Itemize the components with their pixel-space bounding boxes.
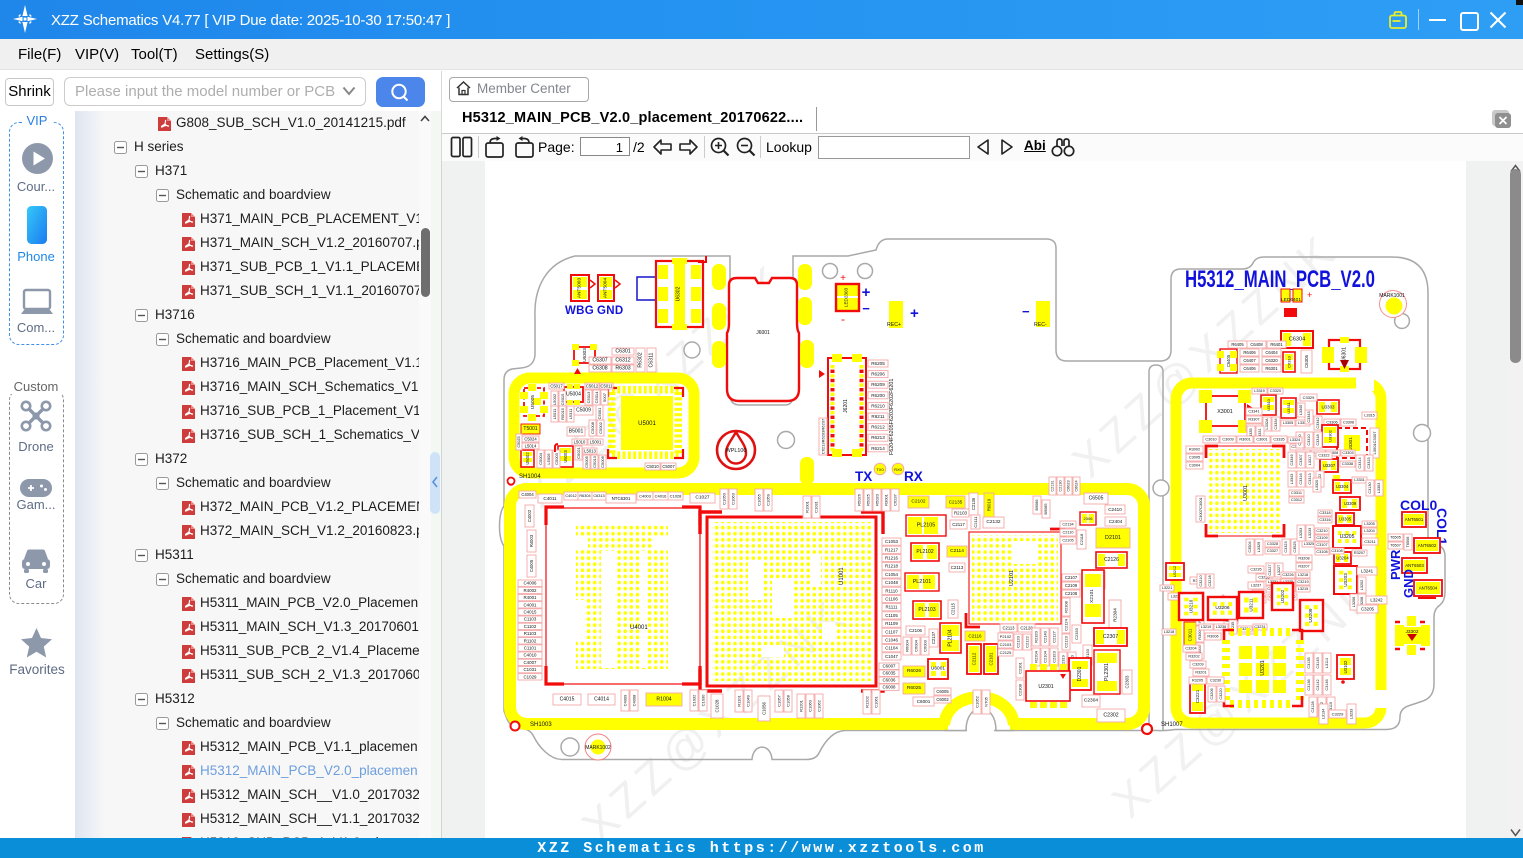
svg-text:U3201: U3201	[1260, 660, 1266, 675]
svg-text:C5025: C5025	[517, 436, 521, 447]
svg-text:U3203: U3203	[1343, 573, 1348, 587]
svg-text:C2136: C2136	[971, 497, 976, 510]
svg-text:C4007: C4007	[524, 660, 537, 665]
svg-text:C2301: C2301	[1018, 661, 1023, 674]
svg-text:C1058: C1058	[786, 694, 791, 707]
svg-text:L5005: L5005	[546, 453, 551, 465]
svg-text:C2128: C2128	[1020, 626, 1033, 631]
svg-text:L3233: L3233	[1350, 709, 1354, 720]
svg-text:C3312: C3312	[1291, 498, 1302, 502]
svg-text:-: -	[841, 312, 845, 326]
svg-text:T6507: T6507	[1390, 544, 1401, 548]
svg-text:C1028: C1028	[715, 699, 720, 712]
svg-text:LED6401: LED6401	[1281, 297, 1301, 303]
svg-text:R1217: R1217	[885, 547, 898, 552]
svg-text:C3005: C3005	[1189, 456, 1200, 460]
svg-text:C2303: C2303	[1125, 675, 1130, 688]
svg-text:R6214: R6214	[871, 446, 885, 451]
svg-text:C2122: C2122	[1025, 635, 1030, 648]
svg-text:C1101: C1101	[524, 646, 537, 651]
svg-text:C1050: C1050	[722, 492, 727, 505]
svg-text:C2140: C2140	[1043, 630, 1048, 643]
svg-text:R3001: R3001	[1239, 438, 1250, 442]
svg-text:C3108: C3108	[1331, 549, 1342, 553]
svg-text:−: −	[862, 301, 870, 316]
svg-text:ANT6501: ANT6501	[1405, 517, 1424, 522]
svg-text:C3313: C3313	[1308, 473, 1312, 484]
svg-text:B9085: B9085	[1044, 504, 1048, 515]
svg-text:C6305: C6305	[1304, 354, 1309, 367]
svg-text:R1001: R1001	[805, 500, 810, 513]
svg-text:C3322: C3322	[1318, 454, 1329, 458]
svg-text:R1216: R1216	[885, 556, 898, 561]
svg-text:C6406: C6406	[1243, 366, 1256, 371]
svg-text:C5012: C5012	[586, 384, 599, 389]
svg-text:C6312: C6312	[615, 358, 630, 364]
svg-text:C6001: C6001	[917, 699, 931, 704]
svg-text:C3318: C3318	[1316, 434, 1320, 445]
svg-text:C6320: C6320	[1265, 358, 1278, 363]
svg-text:L3114: L3114	[1325, 658, 1329, 668]
svg-text:C3341: C3341	[1248, 410, 1259, 414]
svg-text:U3206: U3206	[1215, 605, 1229, 611]
svg-text:R3307: R3307	[1248, 418, 1259, 422]
svg-text:L3202: L3202	[1360, 580, 1364, 591]
svg-text:C3338: C3338	[1342, 462, 1353, 466]
svg-text:C5005: C5005	[584, 455, 589, 468]
svg-text:C5013: C5013	[592, 455, 597, 468]
svg-text:U3310: U3310	[1266, 398, 1271, 411]
svg-text:C4003: C4003	[639, 494, 652, 499]
svg-text:U1001: U1001	[839, 567, 845, 585]
svg-text:C4005: C4005	[529, 559, 534, 572]
svg-text:C1032: C1032	[692, 694, 697, 707]
svg-text:U3210: U3210	[1189, 599, 1194, 613]
svg-text:L5010: L5010	[574, 440, 586, 445]
svg-text:C6007: C6007	[883, 664, 896, 669]
svg-text:L5013: L5013	[584, 449, 596, 454]
svg-text:C3001: C3001	[1256, 438, 1267, 442]
svg-text:C5003: C5003	[554, 452, 559, 465]
svg-text:C6003: C6003	[923, 639, 928, 652]
svg-text:C3335: C3335	[1273, 438, 1284, 442]
svg-text:C2124: C2124	[1064, 618, 1069, 631]
svg-text:C2323: C2323	[1052, 650, 1057, 663]
svg-text:R2304: R2304	[1113, 608, 1118, 622]
svg-text:C3306: C3306	[1326, 421, 1337, 425]
svg-text:R3201: R3201	[1195, 671, 1206, 675]
svg-text:C2118: C2118	[1079, 533, 1084, 545]
svg-text:X3001: X3001	[1217, 409, 1233, 415]
svg-text:U2101: U2101	[1009, 570, 1015, 586]
svg-text:L3221: L3221	[1162, 586, 1173, 590]
svg-text:+: +	[862, 284, 871, 301]
svg-text:C2333: C2333	[1074, 627, 1079, 640]
svg-text:C2115: C2115	[951, 602, 956, 615]
svg-text:U3205: U3205	[1340, 534, 1355, 540]
svg-text:C2307: C2307	[1103, 634, 1118, 640]
svg-text:+: +	[840, 273, 846, 284]
svg-text:PL2102: PL2102	[916, 549, 933, 555]
svg-text:C3128: C3128	[1311, 701, 1315, 712]
svg-text:C4008: C4008	[632, 694, 637, 707]
svg-text:C6408: C6408	[1250, 342, 1263, 347]
svg-text:U6001: U6001	[931, 666, 945, 672]
svg-text:L3204: L3204	[1364, 529, 1375, 533]
svg-text:C2107: C2107	[1065, 575, 1078, 580]
svg-text:C1103: C1103	[524, 617, 537, 622]
svg-text:R1004: R1004	[656, 697, 671, 703]
svg-text:C6213R6203R6207: C6213R6203R6207	[821, 418, 826, 454]
svg-text:C2105: C2105	[1062, 539, 1073, 543]
svg-text:L3315: L3315	[1364, 414, 1375, 418]
svg-text:C1063: C1063	[731, 492, 736, 505]
svg-text:U3311: U3311	[1286, 401, 1291, 413]
svg-text:L5311: L5311	[568, 408, 573, 420]
svg-text:C5001: C5001	[597, 407, 602, 420]
svg-text:+: +	[910, 305, 919, 322]
svg-text:R3207: R3207	[1354, 551, 1365, 555]
svg-text:C4006: C4006	[524, 581, 537, 586]
svg-text:L3206: L3206	[1352, 597, 1356, 608]
svg-text:R2204: R2204	[1034, 650, 1039, 663]
svg-text:C2120: C2120	[1016, 635, 1021, 648]
svg-text:R6209: R6209	[871, 382, 885, 387]
svg-text:C3220: C3220	[1219, 688, 1223, 699]
svg-text:NTC6301: NTC6301	[612, 496, 631, 501]
svg-text:C1106: C1106	[885, 597, 898, 602]
svg-text:C1057: C1057	[777, 694, 782, 707]
svg-text:C1104: C1104	[885, 646, 898, 651]
svg-text:U3211: U3211	[1249, 598, 1254, 612]
svg-text:RX0: RX0	[894, 467, 903, 472]
svg-text:C3314: C3314	[1358, 457, 1362, 468]
svg-text:L3218: L3218	[1298, 573, 1309, 577]
svg-text:C5004: C5004	[538, 452, 543, 465]
svg-text:R1202: R1202	[865, 695, 870, 708]
svg-text:U3102: U3102	[1343, 660, 1348, 673]
svg-text:C3221: C3221	[1195, 689, 1200, 703]
svg-text:C2130: C2130	[1059, 480, 1063, 491]
svg-text:C1049: C1049	[746, 694, 751, 707]
svg-text:C3211: C3211	[1364, 539, 1376, 544]
svg-text:C1107: C1107	[885, 629, 898, 634]
svg-text:R6019: R6019	[987, 498, 992, 511]
svg-text:C1056: C1056	[762, 701, 767, 714]
svg-text:L5002: L5002	[552, 393, 557, 405]
svg-text:L3219: L3219	[1201, 625, 1212, 629]
svg-text:C1028: C1028	[670, 494, 683, 499]
svg-text:U3307: U3307	[1323, 463, 1336, 468]
svg-text:C6308: C6308	[592, 366, 607, 372]
svg-text:NT05: NT05	[984, 696, 989, 707]
svg-text:C2109: C2109	[1065, 583, 1078, 588]
svg-text:R4002: R4002	[524, 588, 537, 593]
svg-text:U3202: U3202	[1280, 589, 1285, 603]
svg-text:U3001: U3001	[1243, 485, 1249, 501]
svg-text:C3210: C3210	[1199, 575, 1203, 586]
svg-text:R4001: R4001	[524, 595, 537, 600]
svg-text:R2308: R2308	[1064, 600, 1069, 613]
svg-text:R6025: R6025	[907, 685, 921, 691]
svg-text:5007: 5007	[602, 392, 607, 402]
svg-text:U3303: U3303	[1322, 405, 1335, 410]
svg-text:L3242: L3242	[1370, 598, 1383, 603]
svg-text:R3006: R3006	[1207, 635, 1218, 639]
svg-text:C1059: C1059	[766, 493, 771, 506]
svg-text:L3319: L3319	[1254, 389, 1265, 393]
svg-text:C3205: C3205	[1361, 607, 1374, 612]
svg-text:C2110: C2110	[1063, 531, 1074, 535]
svg-text:L3501C3307: L3501C3307	[1372, 431, 1377, 455]
svg-text:C2131: C2131	[1051, 480, 1055, 491]
svg-text:R1111: R1111	[886, 605, 899, 610]
svg-text:R5026: R5026	[857, 493, 862, 506]
svg-text:L5014: L5014	[525, 444, 537, 449]
svg-text:C1054: C1054	[885, 572, 898, 577]
svg-text:C1048: C1048	[885, 580, 898, 585]
svg-text:C5015: C5015	[560, 393, 565, 406]
svg-text:R6401: R6401	[1270, 342, 1283, 347]
svg-text:C1046: C1046	[885, 638, 898, 643]
svg-text:C2112: C2112	[972, 652, 977, 665]
svg-text:C4015: C4015	[560, 697, 575, 703]
svg-text:C2125: C2125	[1000, 650, 1013, 655]
svg-text:C3145: C3145	[1316, 657, 1320, 668]
svg-text:C3007C3001: C3007C3001	[1198, 496, 1203, 520]
svg-text:R3002: R3002	[1189, 448, 1200, 452]
svg-text:L3325: L3325	[1304, 542, 1315, 546]
svg-text:C4015: C4015	[524, 610, 537, 615]
svg-text:C4014: C4014	[594, 697, 609, 703]
svg-text:C3109: C3109	[1316, 536, 1327, 540]
svg-text:C3327: C3327	[1267, 549, 1278, 553]
svg-text:C3218: C3218	[1208, 575, 1212, 586]
svg-text:C3146: C3146	[1325, 679, 1329, 690]
svg-text:C3316: C3316	[1299, 473, 1303, 484]
svg-text:L3134: L3134	[1322, 709, 1326, 720]
svg-text:R5025: R5025	[866, 493, 871, 506]
svg-text:C4011: C4011	[543, 496, 557, 501]
svg-text:C5013: C5013	[586, 391, 591, 404]
svg-text:L5011: L5011	[552, 408, 557, 420]
svg-text:R3202: R3202	[1188, 655, 1199, 659]
svg-text:C3315: C3315	[1367, 457, 1371, 468]
svg-text:C6304: C6304	[1289, 337, 1305, 343]
svg-text:C6004: C6004	[914, 639, 919, 652]
svg-text:C6405: C6405	[1226, 354, 1231, 367]
svg-text:C4002: C4002	[527, 509, 532, 522]
svg-text:C2117: C2117	[952, 522, 965, 527]
svg-text:RX: RX	[904, 469, 923, 484]
svg-text:C1029: C1029	[524, 674, 537, 679]
svg-text:C2135: C2135	[949, 500, 963, 505]
svg-text:C3328: C3328	[1267, 542, 1278, 546]
svg-text:U5005: U5005	[530, 395, 536, 409]
svg-text:C2102: C2102	[911, 499, 925, 505]
svg-text:R6212: R6212	[871, 425, 885, 430]
svg-text:U6301: U6301	[1342, 347, 1348, 362]
svg-text:R6206: R6206	[871, 372, 885, 377]
svg-text:C1055: C1055	[757, 493, 762, 506]
svg-text:REC-: REC-	[1034, 322, 1047, 328]
svg-text:C6301: C6301	[615, 349, 630, 355]
svg-text:C3343: C3343	[1307, 411, 1311, 422]
svg-text:C5009: C5009	[576, 408, 591, 414]
svg-text:X2101: X2101	[1089, 589, 1095, 603]
svg-text:L3329: L3329	[1257, 542, 1261, 553]
svg-text:ANT6502: ANT6502	[1418, 543, 1437, 548]
svg-text:C5014: C5014	[594, 391, 599, 404]
svg-text:R6210: R6210	[871, 403, 885, 408]
svg-text:L3324: L3324	[1290, 438, 1301, 442]
svg-text:D2301: D2301	[1077, 666, 1083, 681]
svg-text:L3218: L3218	[1164, 630, 1175, 634]
svg-text:U3305: U3305	[1339, 517, 1352, 522]
svg-text:WPL100: WPL100	[726, 448, 747, 454]
svg-text:C1052: C1052	[975, 695, 980, 708]
svg-text:C4009: C4009	[623, 694, 628, 707]
svg-text:C3310: C3310	[1307, 434, 1311, 445]
svg-text:C6024: C6024	[1075, 480, 1079, 491]
svg-text:R1109: R1109	[885, 621, 898, 626]
svg-text:C4004: C4004	[521, 492, 534, 497]
svg-text:C5017: C5017	[550, 384, 563, 389]
svg-text:C1105: C1105	[885, 613, 898, 618]
svg-text:C3009: C3009	[1222, 438, 1233, 442]
svg-text:R1110: R1110	[885, 588, 898, 593]
svg-text:C2108: C2108	[1065, 591, 1078, 596]
svg-text:SH1004: SH1004	[519, 474, 541, 480]
svg-text:U3209: U3209	[1308, 608, 1314, 622]
svg-text:R1102: R1102	[524, 638, 537, 643]
svg-text:L3331: L3331	[1354, 478, 1365, 482]
svg-text:WBG: WBG	[565, 305, 594, 317]
svg-text:U3309: U3309	[1344, 501, 1357, 506]
svg-text:R5020: R5020	[875, 493, 880, 506]
svg-text:C1047: C1047	[885, 654, 898, 659]
svg-text:PL2301: PL2301	[1104, 663, 1110, 681]
svg-text:C3329: C3329	[1303, 395, 1316, 400]
svg-text:R2320: R2320	[1034, 630, 1039, 643]
svg-text:C3318: C3318	[1319, 511, 1330, 515]
svg-text:L3340: L3340	[1299, 405, 1303, 416]
svg-text:J6201: J6201	[843, 399, 849, 413]
svg-text:R1103: R1103	[524, 631, 537, 636]
svg-text:COL0: COL0	[1400, 497, 1438, 513]
svg-text:R3207: R3207	[1298, 565, 1309, 569]
svg-text:L3205: L3205	[1364, 522, 1375, 526]
svg-text:C3342: C3342	[1316, 417, 1320, 428]
svg-text:R6200: R6200	[871, 393, 885, 398]
svg-text:R6205: R6205	[871, 361, 885, 366]
svg-text:C3323: C3323	[1284, 541, 1288, 552]
svg-text:L3241: L3241	[1361, 569, 1374, 574]
svg-text:L3343: L3343	[1290, 474, 1294, 485]
svg-text:C3229: C3229	[1332, 712, 1345, 717]
svg-text:C3107: C3107	[1316, 543, 1327, 547]
svg-text:C3142: C3142	[1316, 679, 1320, 690]
svg-text:C2134: C2134	[1062, 523, 1073, 527]
svg-text:R6301: R6301	[1265, 366, 1278, 371]
svg-text:R5015: R5015	[560, 407, 565, 420]
svg-text:C2113: C2113	[951, 565, 964, 570]
svg-text:R6302: R6302	[638, 352, 644, 367]
svg-text:C2114: C2114	[950, 548, 964, 554]
svg-text:ANT5003: ANT5003	[577, 278, 583, 299]
svg-text:C1060: C1060	[808, 699, 813, 712]
svg-text:C3010: C3010	[1205, 438, 1216, 442]
svg-text:R6405: R6405	[1231, 342, 1244, 347]
svg-text:R6303: R6303	[615, 366, 630, 372]
svg-text:2306: 2306	[1084, 516, 1094, 521]
svg-text:C2308: C2308	[1018, 683, 1023, 696]
svg-text:C1030: C1030	[701, 694, 706, 707]
svg-text:C5024: C5024	[524, 437, 537, 442]
svg-text:T5001: T5001	[523, 426, 537, 432]
svg-text:C6237: C6237	[893, 493, 898, 506]
svg-text:ANT5004: ANT5004	[603, 278, 609, 299]
svg-text:−: −	[1022, 304, 1030, 319]
svg-text:TX0: TX0	[876, 467, 884, 472]
svg-text:C3011: C3011	[1188, 628, 1193, 641]
svg-text:C6035: C6035	[883, 671, 896, 676]
svg-text:SH1003: SH1003	[530, 722, 552, 728]
svg-text:U6302: U6302	[676, 286, 682, 301]
svg-text:C6005: C6005	[936, 689, 949, 694]
svg-text:C2137: C2137	[931, 631, 936, 644]
svg-text:C3136: C3136	[1307, 679, 1311, 690]
svg-text:ANT6504: ANT6504	[1419, 586, 1438, 591]
svg-text:C1053: C1053	[885, 539, 898, 544]
svg-text:R3205: R3205	[1192, 679, 1203, 683]
svg-text:C3320: C3320	[1270, 389, 1281, 393]
svg-text:MARK1002: MARK1002	[585, 745, 611, 751]
svg-text:U2301: U2301	[1038, 684, 1053, 690]
svg-text:R6304: R6304	[579, 494, 590, 498]
svg-text:PL2105: PL2105	[917, 523, 936, 529]
svg-text:B5001: B5001	[569, 429, 584, 435]
svg-text:C2410: C2410	[1108, 507, 1122, 512]
svg-text:C6002: C6002	[936, 697, 949, 702]
svg-text:U3212: U3212	[1173, 566, 1177, 577]
svg-text:C4010: C4010	[524, 653, 537, 658]
svg-text:U5004: U5004	[566, 392, 581, 398]
svg-text:T6505: T6505	[1390, 536, 1401, 540]
svg-text:C3504: C3504	[1248, 541, 1252, 552]
svg-text:R4003: R4003	[529, 534, 534, 547]
svg-text:C1031: C1031	[524, 667, 537, 672]
svg-text:L3215: L3215	[1298, 587, 1309, 591]
svg-text:P2102: P2102	[1000, 634, 1012, 639]
svg-text:U3302: U3302	[1328, 429, 1333, 442]
svg-text:R6406: R6406	[1243, 350, 1256, 355]
svg-text:C3226: C3226	[1282, 573, 1293, 577]
svg-text:C3204: C3204	[1185, 647, 1196, 651]
svg-text:MARK1001: MARK1001	[1379, 293, 1405, 299]
svg-text:C3235: C3235	[1250, 568, 1261, 572]
svg-text:PL2101: PL2101	[913, 579, 932, 585]
svg-text:C1062: C1062	[817, 699, 822, 712]
svg-text:C3227: C3227	[1268, 564, 1272, 575]
svg-text:U3304: U3304	[1336, 484, 1349, 489]
svg-text:C6505: C6505	[1089, 496, 1104, 502]
svg-text:L3236: L3236	[1216, 625, 1227, 629]
svg-text:C3308: C3308	[1343, 421, 1354, 425]
svg-text:L3233: L3233	[1308, 528, 1312, 539]
svg-text:C6407: C6407	[1243, 358, 1256, 363]
svg-text:C2104: C2104	[1043, 650, 1048, 663]
